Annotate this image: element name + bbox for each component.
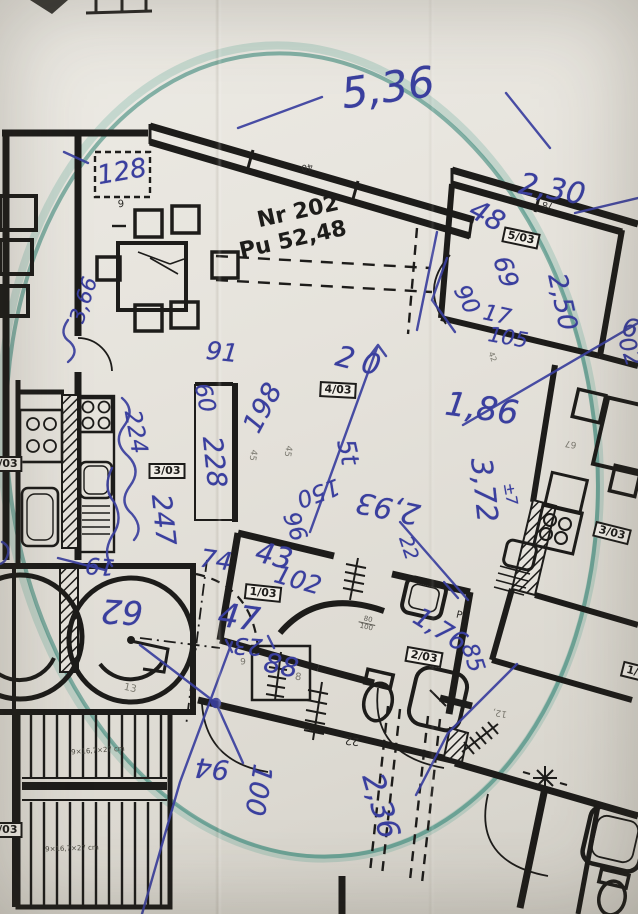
room-tag-4-03: 4/03 [319, 381, 357, 399]
printed-dim: 9 [117, 200, 124, 210]
annotation-layer: 5,361283,662,3048692,509017105201,863,72… [0, 0, 638, 914]
room-tag-partial-left: /03 [0, 456, 23, 472]
pen-dim: 23 [233, 633, 263, 658]
room-tag-partial-right: 1/0 [620, 661, 638, 684]
room-tag-3-03-right: 3/03 [592, 521, 632, 545]
pen-dim: 5t [333, 437, 363, 467]
pen-dim: 100 [240, 762, 276, 817]
printed-dim: 42 [486, 351, 497, 363]
pen-dim: 2,93 [353, 487, 422, 529]
room-tag-5-03: 5/03 [501, 226, 541, 249]
pen-dim: 224 [120, 408, 150, 455]
pen-dim: 2,50 [543, 271, 580, 333]
printed-dim: 12, [492, 706, 508, 717]
pen-dim: 20 [333, 342, 391, 383]
pen-dim: 3,66 [67, 275, 101, 326]
pen-dim: 90 [449, 282, 483, 319]
pen-dim: ±7 [501, 482, 520, 506]
pen-dim: 02 [614, 335, 638, 370]
room-tag-2-03: 2/03 [404, 646, 443, 668]
printed-dim: 40 [301, 161, 314, 172]
pen-dim: 91 [205, 338, 239, 366]
floor-plan-photo: Nr 202 Pu 52,48 5,361283,662,3048692,509… [0, 0, 638, 914]
pen-dim: 105 [486, 324, 529, 352]
pen-dim: 60 [190, 381, 219, 414]
pen-dim: 74 [199, 545, 234, 574]
pen-dim: 69 [489, 253, 523, 291]
pen-dim: 94 [194, 753, 231, 783]
stair-spec-label: 9×16,7×27 cm [71, 746, 125, 757]
pen-dim: 19 [84, 552, 115, 577]
printed-dim: 13 [123, 683, 138, 695]
printed-dim: 22 [344, 735, 359, 747]
sink-size-fraction: 80100 [357, 614, 377, 633]
printed-dim: 78 [542, 199, 555, 210]
printed-dim: 45 [282, 445, 293, 458]
printed-letter: P [455, 610, 463, 621]
pen-dim: 247 [147, 493, 179, 547]
printed-dim: 67 [565, 438, 578, 449]
printed-dim: 8 [294, 673, 302, 684]
pen-dim: 150 [293, 474, 342, 511]
pen-dim: 3,72 [466, 456, 502, 523]
pen-dim: 2,36 [356, 770, 403, 842]
stair-spec-label: 9×16,7×27 cm [45, 845, 99, 854]
room-tag-3-03-left: 3/03 [149, 463, 186, 479]
printed-dim: 9 [240, 659, 246, 668]
pen-dim: 22 [395, 534, 421, 563]
pen-dim: 5,36 [339, 61, 437, 116]
pen-dim: 228 [198, 435, 230, 489]
pen-dim: 198 [239, 379, 287, 437]
pen-dim: 128 [95, 155, 148, 189]
room-tag-partial-stairs: 4/03 [0, 822, 22, 838]
pen-dim: 62 [100, 594, 144, 629]
printed-dim: 45 [247, 449, 258, 462]
pen-dim: 1,86 [443, 387, 520, 430]
pen-dim: 47 [216, 598, 262, 637]
